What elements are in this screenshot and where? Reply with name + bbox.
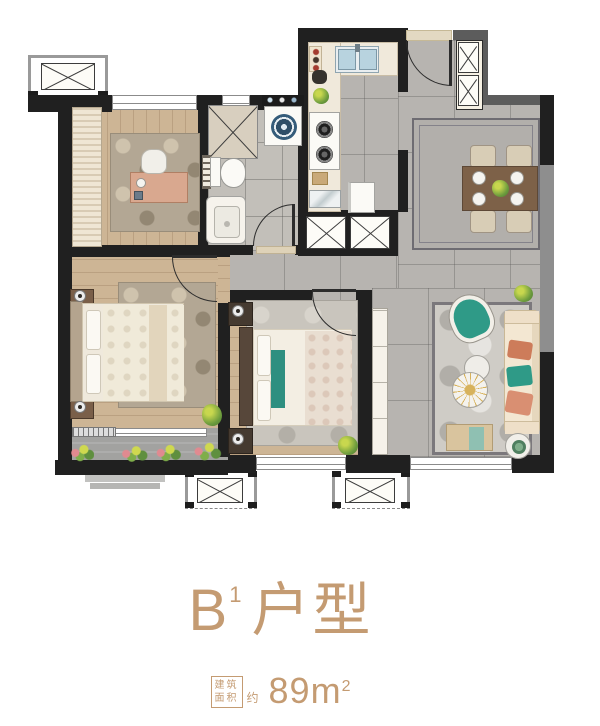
area-number: 89: [269, 670, 311, 711]
wall-notch-bottom: [478, 95, 544, 105]
wall-bottom-b: [346, 455, 410, 473]
tv-cabinet: [372, 308, 388, 455]
platform-foot: [248, 502, 257, 508]
kettle: [312, 70, 327, 84]
unit-letter-superscript: 1: [229, 582, 241, 607]
sofa-pillow-coral: [504, 390, 533, 416]
sofa-pillow-orange: [507, 339, 533, 360]
area-row: 建筑 面积 约 89m2: [0, 670, 562, 708]
second-bedroom-door-leaf: [312, 289, 356, 292]
ac-unit-x-icon: [345, 478, 395, 503]
burner-icon: [316, 146, 333, 163]
study-wardrobe: [72, 107, 102, 247]
master-bed: [82, 303, 184, 402]
spice-rack: [309, 46, 322, 72]
shaft-x-icon: [350, 216, 390, 249]
kitchen-plant: [313, 88, 329, 104]
wall-bottom-a: [228, 455, 256, 473]
faucet-icon: [224, 221, 230, 227]
wall-bedroom-divider-stub: [218, 245, 230, 257]
desk-chair: [141, 149, 167, 174]
platform-foot: [185, 502, 194, 508]
wall-kitchen-top: [298, 28, 408, 42]
ac-platform-bottom-right: [332, 473, 410, 509]
bed-duvet: [305, 331, 352, 425]
desk-item: [136, 178, 146, 188]
sink-basin: [359, 49, 377, 70]
area-badge: 建筑 面积: [211, 676, 243, 708]
bench-throw: [469, 427, 484, 450]
ac-platform-top-left: [28, 55, 108, 96]
master-corner-plant: [202, 404, 222, 426]
balcony-flower-bed: [120, 445, 148, 462]
bed-runner-teal: [271, 350, 285, 408]
bathroom-doormat: [256, 246, 296, 254]
dishwasher: [309, 190, 341, 208]
entry-door-leaf: [449, 40, 452, 86]
balcony-flower-bed: [155, 443, 181, 462]
cabinet-x-icon: [458, 42, 479, 73]
table-centerpiece-plant: [492, 180, 509, 197]
second-bed: [253, 329, 352, 426]
duct-shaft: [298, 210, 398, 256]
area-badge-line2: 面积: [215, 693, 239, 704]
dining-chair: [470, 145, 496, 168]
bench-ottoman: [446, 424, 493, 451]
shoe-cabinet: [456, 40, 483, 110]
washer-drum-icon: [271, 114, 297, 140]
burner-icon: [316, 121, 333, 138]
floor-plan: [0, 0, 600, 540]
place-setting: [472, 171, 486, 185]
wall-right-upper: [540, 95, 554, 165]
sofa-armrest: [505, 421, 539, 434]
ac-platform-bottom-left: [185, 473, 257, 509]
exterior-notch: [488, 28, 600, 95]
bathroom-door-leaf: [292, 204, 295, 246]
master-door-leaf: [172, 255, 217, 258]
area-value: 89m2: [269, 670, 352, 708]
bed-duvet: [103, 305, 184, 401]
living-plant: [514, 285, 533, 302]
radiator: [72, 427, 116, 437]
area-badge-line1: 建筑: [215, 680, 239, 691]
second-headboard: [239, 327, 253, 426]
floorplan-card: B1户型 建筑 面积 约 89m2: [0, 0, 600, 726]
side-table: [505, 433, 531, 459]
bed-throw: [149, 305, 167, 401]
bathroom-sink: [206, 196, 246, 244]
sofa-pillow-teal: [506, 365, 533, 388]
bed-pillow: [257, 335, 271, 376]
window-master-balcony: [115, 428, 207, 437]
laundry-shelf: [262, 95, 304, 106]
bed-pillow: [257, 380, 271, 421]
toilet: [220, 158, 246, 188]
sink-basin: [338, 49, 356, 70]
shaft-x-icon: [306, 216, 346, 249]
fridge: [348, 182, 375, 213]
unit-type-label: 户型: [251, 578, 373, 643]
ac-unit-x-icon: [197, 478, 243, 503]
wall-bedroom-living-divider: [358, 290, 372, 457]
unit-letter: B: [189, 578, 230, 643]
balcony-flower-bed: [70, 443, 94, 462]
window-second-bedroom: [256, 457, 346, 470]
place-setting: [510, 192, 524, 206]
bed-pillow: [86, 354, 101, 394]
place-setting: [472, 192, 486, 206]
area-unit: m: [311, 670, 342, 711]
wall-right-shared: [540, 165, 554, 355]
faucet-icon: [355, 44, 360, 52]
balcony-flower-bed: [192, 440, 222, 462]
unit-title: B1户型: [0, 579, 562, 643]
sofa-armrest: [505, 311, 539, 324]
bedroom-corner-plant: [338, 436, 358, 455]
bed-pillow: [86, 310, 101, 350]
table-lamp: [75, 402, 85, 412]
table-lamp: [75, 291, 85, 301]
dining-chair: [506, 145, 532, 168]
cutting-board: [312, 172, 328, 185]
table-lamp: [233, 306, 243, 316]
stove: [309, 112, 340, 170]
area-unit-superscript: 2: [342, 678, 352, 695]
platform-foot: [332, 502, 341, 508]
desk-item: [134, 191, 143, 200]
side-table-plant: [512, 440, 526, 454]
balcony-steps: [90, 483, 160, 489]
dining-chair: [470, 210, 496, 233]
master-doorway-floor: [218, 257, 230, 305]
ac-unit-x-icon: [41, 63, 95, 90]
platform-foot: [401, 502, 410, 508]
cabinet-x-icon: [458, 75, 479, 106]
window-living: [410, 457, 512, 470]
wall-kitchen-right-b: [398, 150, 408, 212]
window-study: [112, 95, 197, 110]
place-setting: [510, 171, 524, 185]
platform-foot: [332, 471, 341, 477]
washing-machine: [264, 106, 302, 146]
table-lamp: [233, 434, 243, 444]
area-approx-label: 约: [247, 689, 259, 706]
wall-balcony-outer: [55, 460, 228, 475]
balcony-steps: [85, 475, 165, 482]
shower: [208, 105, 258, 159]
dining-chair: [506, 210, 532, 233]
sofa-back: [532, 313, 539, 433]
coffee-table-large: [452, 372, 488, 408]
kitchen-sink: [335, 46, 379, 73]
